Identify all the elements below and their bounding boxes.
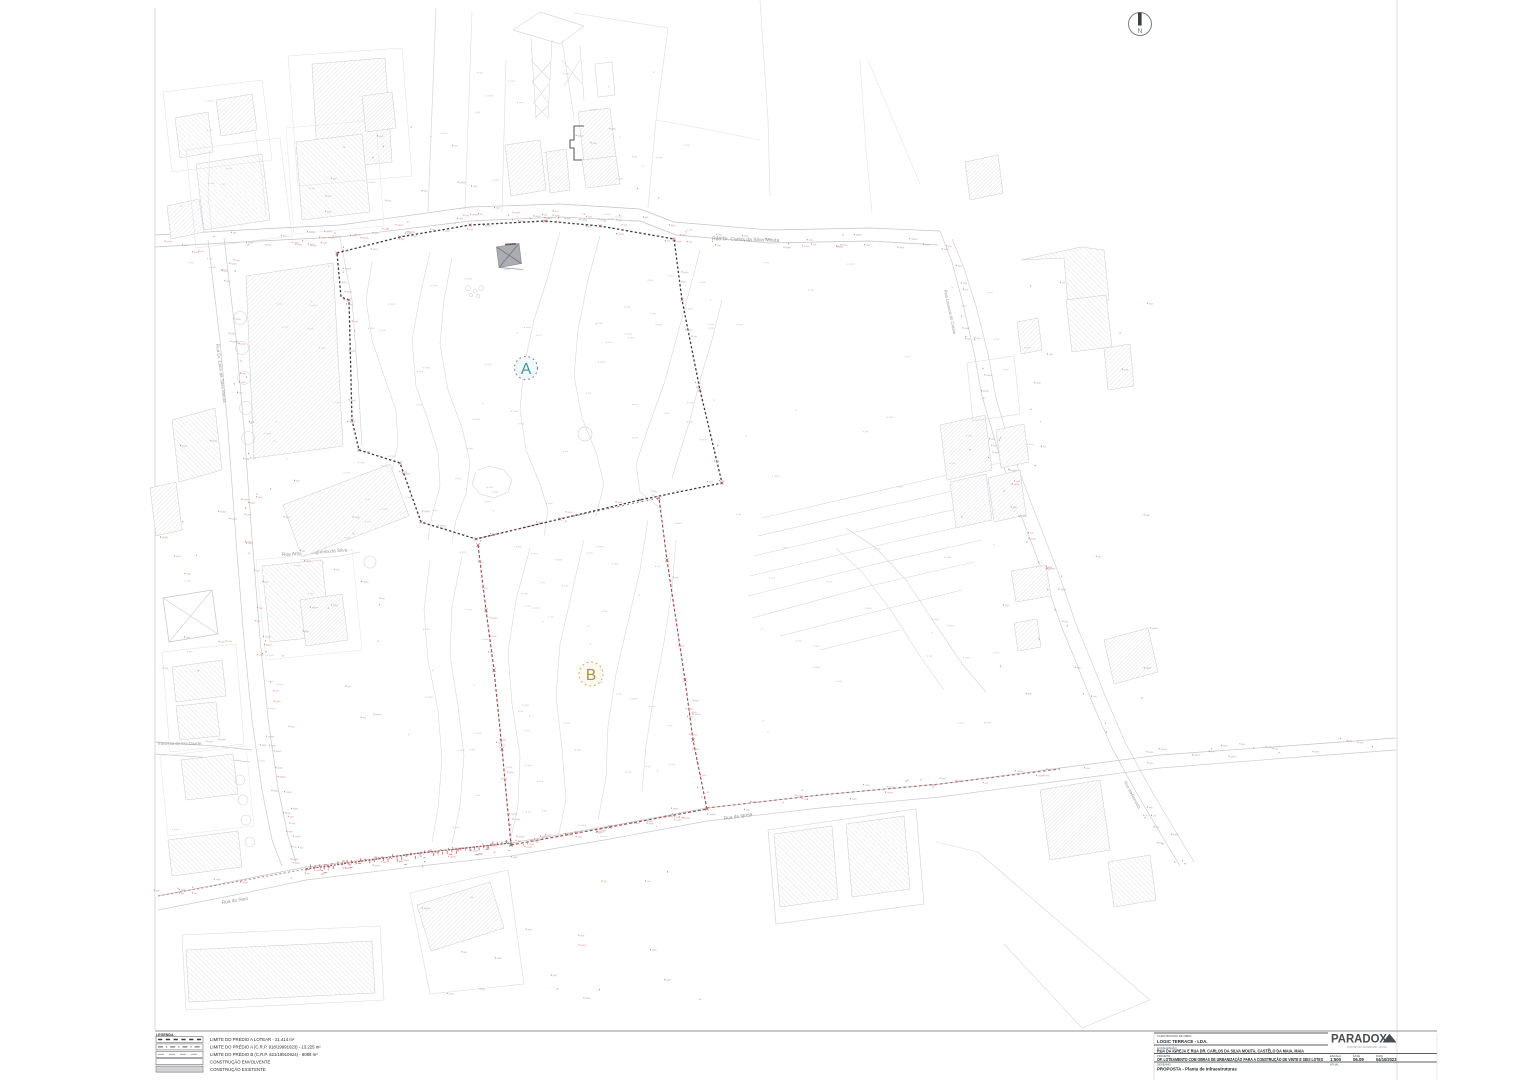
- svg-text:B: B: [586, 667, 596, 684]
- svg-text:Travessa da Sra Duarte: Travessa da Sra Duarte: [157, 741, 202, 746]
- svg-text:PROPOSTA - Planta de infraestr: PROPOSTA - Planta de infraestruturas: [1157, 1066, 1237, 1071]
- svg-text:RUA DA IGREJA E RUA DR. CARLOS: RUA DA IGREJA E RUA DR. CARLOS DA SILVA …: [1157, 1049, 1304, 1054]
- svg-text:LIMITE DO PRÉDIO A LOTEAR - 21: LIMITE DO PRÉDIO A LOTEAR - 21.414 m²: [210, 1037, 295, 1042]
- svg-text:ATUAL: ATUAL: [1330, 1063, 1339, 1067]
- svg-text:PARADOX: PARADOX: [1331, 1034, 1387, 1046]
- svg-text:CONSTRUÇÃO ENVOLVENTE: CONSTRUÇÃO ENVOLVENTE: [210, 1059, 270, 1064]
- svg-text:04/10/2023: 04/10/2023: [1376, 1057, 1397, 1062]
- svg-text:ARQUITETURA | ENGENHARIA | GES: ARQUITETURA | ENGENHARIA | GESTÃO: [1347, 1046, 1387, 1049]
- svg-text:OP. LOTEAMENTO COM OBRAS DE UR: OP. LOTEAMENTO COM OBRAS DE URBANIZAÇÃO …: [1157, 1057, 1323, 1062]
- svg-text:CONSTRUÇÃO EXISTENTE: CONSTRUÇÃO EXISTENTE: [210, 1067, 266, 1072]
- svg-text:06.09: 06.09: [1353, 1057, 1364, 1062]
- svg-text:CLIENTE/DONO DE OBRA: CLIENTE/DONO DE OBRA: [1157, 1034, 1191, 1038]
- svg-text:LIMITE DO PRÉDIO B (C.R.P. 621: LIMITE DO PRÉDIO B (C.R.P. 621/19910924)…: [210, 1052, 318, 1057]
- svg-text:LOGIC TERRACE - LDA.: LOGIC TERRACE - LDA.: [1157, 1039, 1208, 1044]
- svg-text:A: A: [521, 361, 532, 378]
- svg-text:1:500: 1:500: [1330, 1057, 1342, 1062]
- svg-text:LIMITE DO PRÉDIO A (C.R.P. 918: LIMITE DO PRÉDIO A (C.R.P. 918/19991023)…: [210, 1045, 321, 1050]
- svg-text:N: N: [1138, 28, 1143, 35]
